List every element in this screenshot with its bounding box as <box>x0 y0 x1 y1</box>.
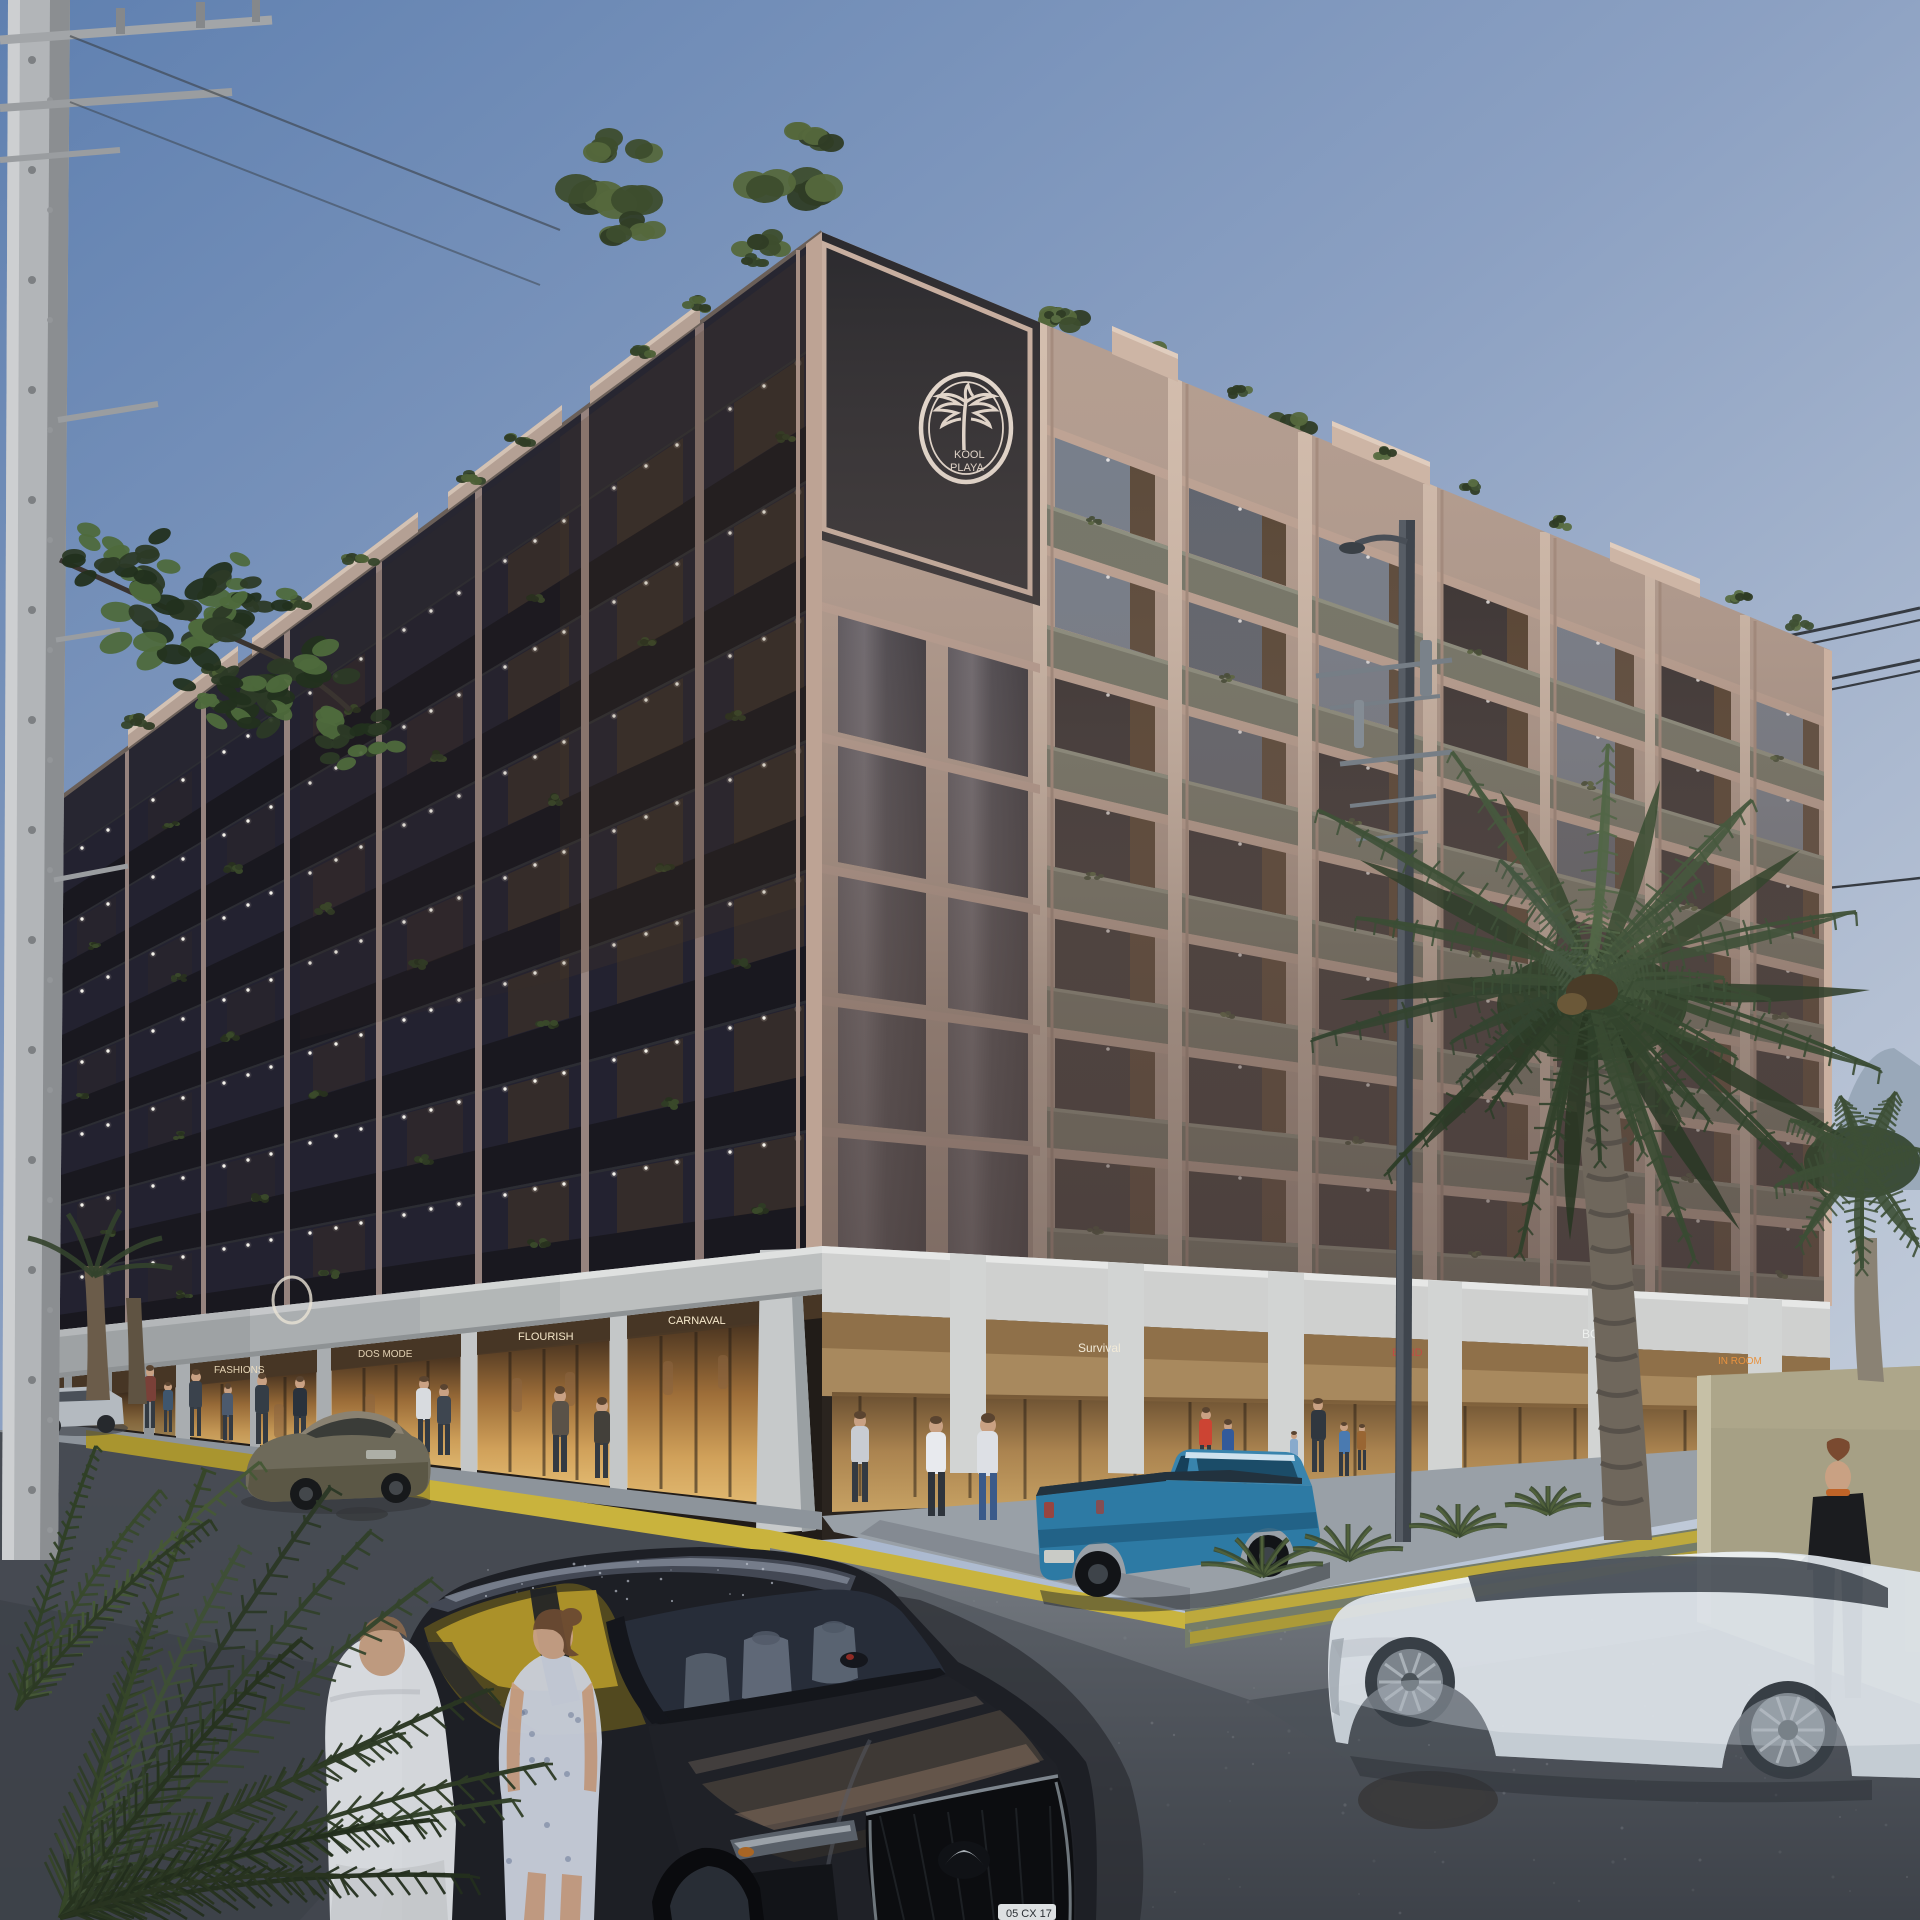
svg-text:FASHIONS: FASHIONS <box>214 1365 265 1376</box>
svg-text:Survival: Survival <box>1078 1341 1121 1355</box>
svg-text:FLOURISH: FLOURISH <box>518 1331 574 1343</box>
svg-text:CARNAVAL: CARNAVAL <box>668 1315 726 1327</box>
svg-text:05 CX 17: 05 CX 17 <box>1006 1908 1052 1920</box>
svg-text:DOS MODE: DOS MODE <box>358 1349 413 1360</box>
svg-text:IN ROOM: IN ROOM <box>1718 1356 1762 1367</box>
